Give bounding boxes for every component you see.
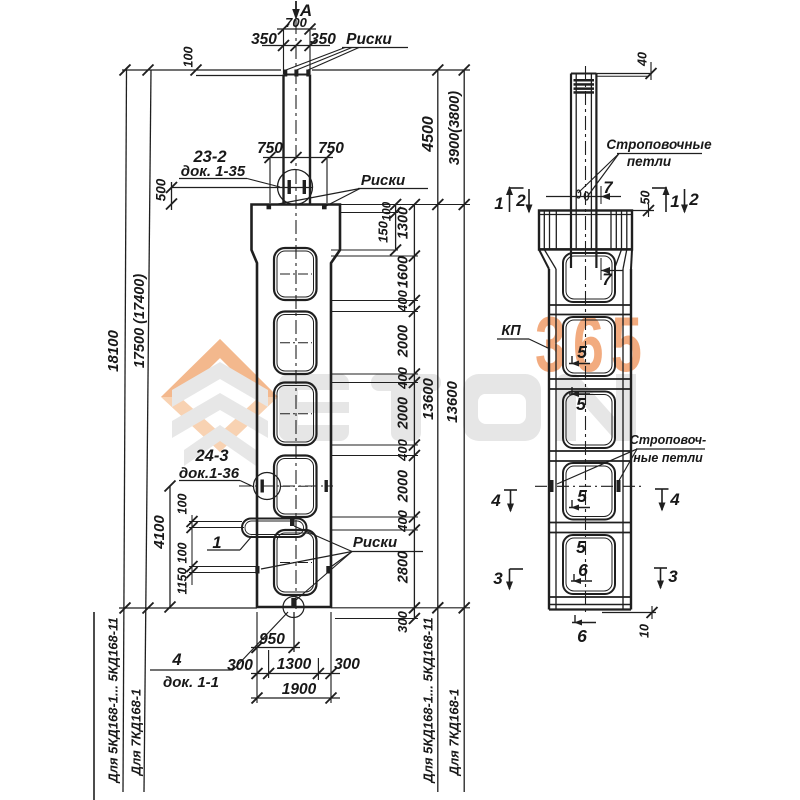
svg-text:2000: 2000 xyxy=(395,325,411,358)
svg-text:100: 100 xyxy=(382,201,394,221)
svg-text:Строповочные: Строповочные xyxy=(606,137,712,152)
svg-text:24-3: 24-3 xyxy=(194,447,228,465)
svg-text:300: 300 xyxy=(334,656,360,673)
svg-text:1300: 1300 xyxy=(395,207,411,239)
svg-text:5: 5 xyxy=(577,342,587,362)
svg-text:4500: 4500 xyxy=(420,116,437,153)
svg-text:2800: 2800 xyxy=(395,551,411,584)
svg-text:400: 400 xyxy=(395,289,410,312)
svg-text:6: 6 xyxy=(578,560,588,580)
svg-text:400: 400 xyxy=(395,366,410,389)
svg-text:1: 1 xyxy=(494,194,503,213)
svg-text:док. 1-1: док. 1-1 xyxy=(163,674,219,691)
svg-text:5: 5 xyxy=(576,394,586,414)
svg-text:750: 750 xyxy=(257,140,283,157)
svg-text:1: 1 xyxy=(670,192,679,211)
svg-text:300: 300 xyxy=(227,657,253,674)
svg-text:Строповоч-: Строповоч- xyxy=(630,433,706,447)
svg-text:3: 3 xyxy=(668,567,678,586)
svg-text:1300: 1300 xyxy=(277,656,312,673)
svg-text:100: 100 xyxy=(175,494,189,515)
svg-text:1600: 1600 xyxy=(395,256,411,288)
svg-text:1: 1 xyxy=(212,534,221,552)
svg-text:КП: КП xyxy=(501,323,521,339)
svg-text:500: 500 xyxy=(154,178,169,201)
svg-text:18100: 18100 xyxy=(105,329,122,371)
svg-text:700: 700 xyxy=(285,15,307,30)
svg-text:2: 2 xyxy=(688,190,699,209)
svg-text:док. 1-35: док. 1-35 xyxy=(181,163,246,180)
svg-text:3900(3800): 3900(3800) xyxy=(447,91,463,165)
svg-text:40: 40 xyxy=(635,52,649,67)
svg-text:1900: 1900 xyxy=(282,681,317,698)
svg-text:4: 4 xyxy=(171,651,181,669)
svg-text:4100: 4100 xyxy=(151,515,168,550)
svg-text:Для 5КД168-1... 5КД168-11: Для 5КД168-1... 5КД168-11 xyxy=(420,617,435,783)
svg-text:750: 750 xyxy=(318,140,344,157)
svg-text:док.1-36: док.1-36 xyxy=(179,465,240,482)
svg-text:100: 100 xyxy=(175,543,189,564)
svg-text:950: 950 xyxy=(259,631,285,648)
svg-text:Для 7КД168-1: Для 7КД168-1 xyxy=(128,689,143,777)
svg-text:2: 2 xyxy=(515,191,526,210)
svg-text:150: 150 xyxy=(375,220,390,242)
svg-text:400: 400 xyxy=(395,509,410,532)
svg-text:Для 7КД168-1: Для 7КД168-1 xyxy=(446,689,461,777)
svg-text:Риски: Риски xyxy=(346,31,392,48)
svg-text:10: 10 xyxy=(637,624,651,638)
svg-text:Риски: Риски xyxy=(353,534,397,551)
svg-text:7: 7 xyxy=(602,271,612,289)
svg-text:300: 300 xyxy=(395,610,410,632)
svg-text:6: 6 xyxy=(577,626,587,646)
svg-text:2000: 2000 xyxy=(395,397,411,430)
svg-text:400: 400 xyxy=(395,438,410,461)
svg-text:350: 350 xyxy=(310,31,336,48)
svg-text:5: 5 xyxy=(577,486,587,506)
svg-text:13600: 13600 xyxy=(444,380,461,422)
svg-text:100: 100 xyxy=(181,47,195,68)
svg-text:350: 350 xyxy=(251,31,277,48)
svg-text:петли: петли xyxy=(627,154,672,169)
svg-text:ные петли: ные петли xyxy=(633,451,703,465)
svg-text:4: 4 xyxy=(669,490,680,509)
svg-text:Для 5КД168-1... 5КД168-11: Для 5КД168-1... 5КД168-11 xyxy=(105,617,120,783)
svg-text:3: 3 xyxy=(493,569,503,588)
svg-text:4: 4 xyxy=(490,491,501,510)
svg-text:50: 50 xyxy=(638,191,652,205)
svg-text:17500 (17400): 17500 (17400) xyxy=(132,274,148,368)
svg-text:5: 5 xyxy=(576,537,586,557)
svg-text:13600: 13600 xyxy=(420,377,437,419)
svg-text:2000: 2000 xyxy=(395,470,411,503)
svg-text:1150: 1150 xyxy=(175,568,189,595)
svg-text:Риски: Риски xyxy=(361,172,405,189)
